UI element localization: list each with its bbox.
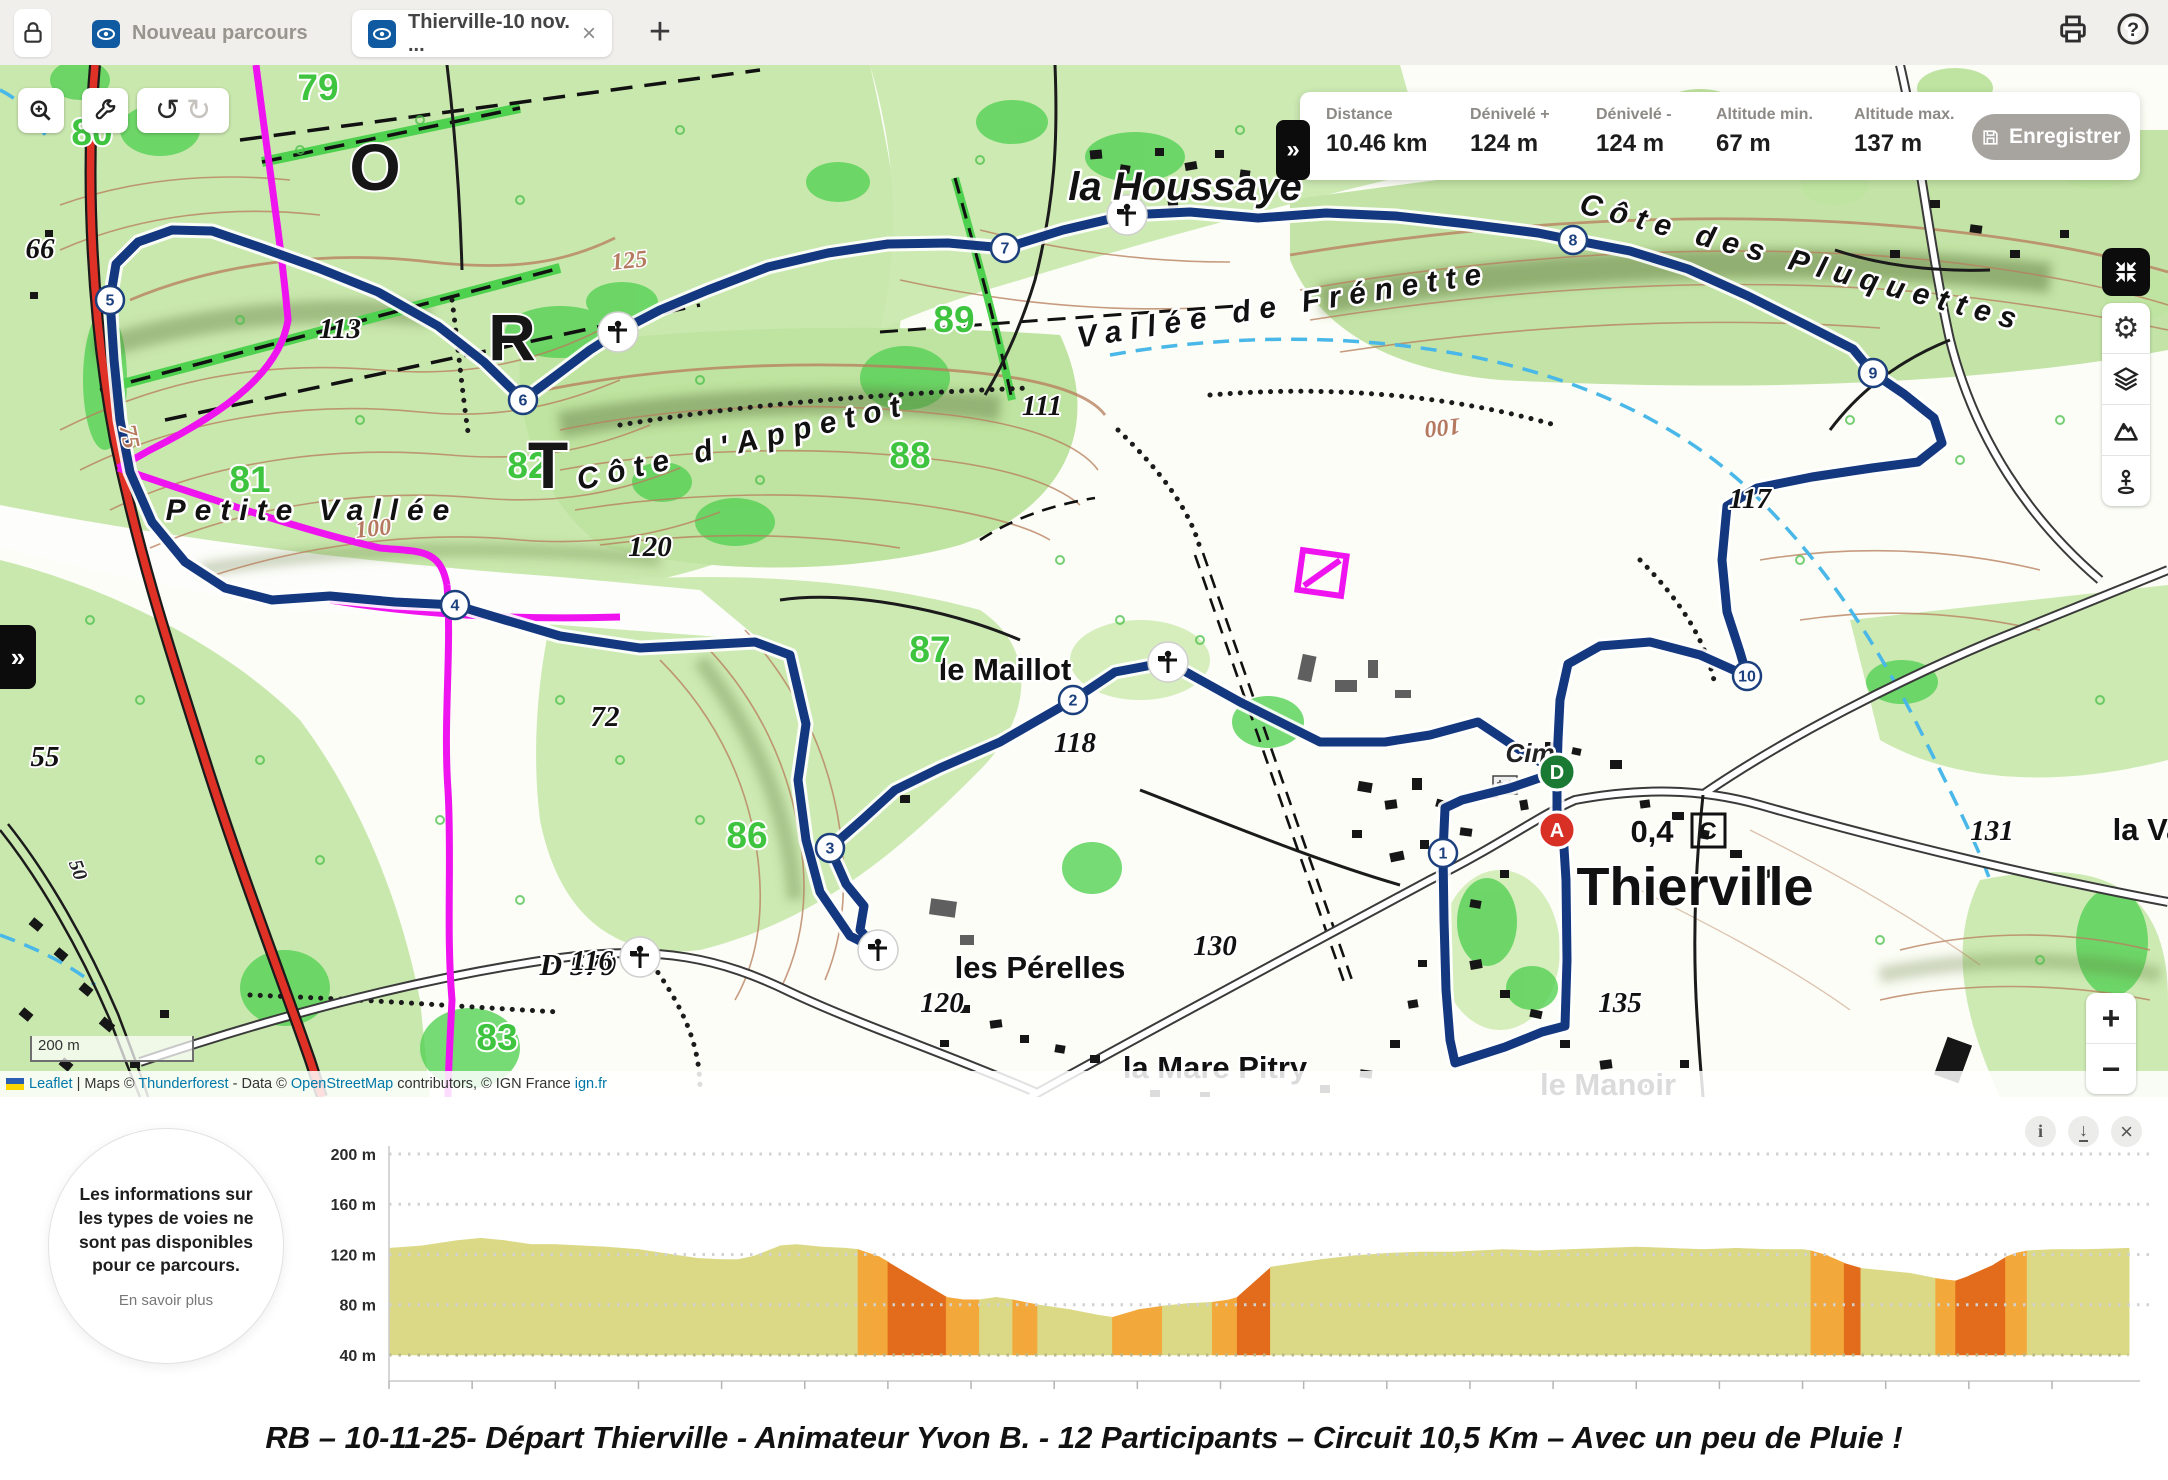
download-icon: ↓ bbox=[2079, 1121, 2088, 1142]
map-label: 117 bbox=[1729, 483, 1772, 515]
map-label: 135 bbox=[1598, 987, 1642, 1019]
gear-icon: ⚙ bbox=[2113, 311, 2140, 346]
building bbox=[1054, 1044, 1065, 1054]
learn-more-link[interactable]: En savoir plus bbox=[119, 1292, 213, 1309]
map-label: la Va bbox=[2113, 812, 2168, 847]
map-attribution: Leaflet | Maps © Thunderforest - Data © … bbox=[0, 1071, 2168, 1097]
waypoint-marker[interactable]: 2 bbox=[1059, 686, 1087, 714]
zoom-in-button[interactable]: + bbox=[2086, 993, 2136, 1044]
profile-area bbox=[389, 1238, 2129, 1355]
stats-panel-toggle[interactable]: » bbox=[1276, 120, 1310, 180]
tree-icon bbox=[436, 816, 444, 824]
caption-text: RB – 10-11-25- Départ Thierville - Anima… bbox=[265, 1420, 1902, 1456]
waypoint-marker[interactable]: 10 bbox=[1733, 662, 1761, 690]
svg-text:3: 3 bbox=[826, 841, 835, 858]
building bbox=[1215, 150, 1224, 158]
building bbox=[2010, 250, 2020, 258]
save-label: Enregistrer bbox=[2009, 125, 2121, 149]
tab-label: Thierville-10 nov. ... bbox=[408, 11, 570, 57]
stat-item: Dénivelé -124 m bbox=[1596, 106, 1672, 158]
lock-button[interactable] bbox=[14, 9, 51, 57]
road-types-tooltip: Les informations sur les types de voies … bbox=[48, 1128, 284, 1364]
building bbox=[1357, 781, 1373, 793]
building bbox=[1020, 1035, 1029, 1043]
svg-text:A: A bbox=[1550, 820, 1564, 842]
svg-text:10: 10 bbox=[1738, 669, 1756, 686]
map-label: 87 bbox=[909, 629, 950, 670]
attribution-link[interactable]: OpenStreetMap bbox=[291, 1076, 393, 1092]
map-label: 83 bbox=[476, 1017, 517, 1058]
map-symbol-c: C bbox=[1692, 814, 1725, 847]
svg-text:8: 8 bbox=[1569, 233, 1578, 250]
map-label: Thierville bbox=[1576, 857, 1813, 917]
building bbox=[900, 795, 910, 803]
building-gray bbox=[1335, 680, 1357, 692]
y-tick-label: 120 m bbox=[331, 1247, 376, 1264]
tree-icon bbox=[1956, 456, 1964, 464]
attribution-text: Leaflet | Maps © Thunderforest - Data © … bbox=[29, 1076, 607, 1092]
exit-fullscreen-button[interactable] bbox=[2102, 248, 2150, 296]
map-label: 86 bbox=[726, 815, 767, 856]
chart-info-button[interactable]: i bbox=[2025, 1116, 2056, 1147]
map-label: 120 bbox=[628, 531, 672, 563]
flag-icon bbox=[6, 1078, 24, 1090]
building bbox=[2060, 230, 2069, 238]
map-label: 0,4 bbox=[1630, 814, 1674, 849]
y-tick-label: 200 m bbox=[331, 1147, 376, 1164]
settings-button[interactable]: ⚙ bbox=[2102, 303, 2150, 354]
map-label: 89 bbox=[933, 299, 974, 340]
building bbox=[1639, 799, 1650, 808]
map-label: 72 bbox=[591, 701, 620, 733]
map-scale: 200 m bbox=[30, 1036, 194, 1062]
waypoint-marker[interactable]: 3 bbox=[816, 834, 844, 862]
help-button[interactable]: ? bbox=[2116, 12, 2150, 46]
magnifier-plus-icon bbox=[28, 98, 54, 124]
building bbox=[1970, 224, 1983, 234]
tab-thierville[interactable]: Thierville-10 nov. ... × bbox=[352, 10, 612, 57]
waypoint-marker[interactable]: 8 bbox=[1559, 226, 1587, 254]
map-label: la Houssaye bbox=[1068, 165, 1301, 209]
tree-icon bbox=[1846, 416, 1854, 424]
close-tab-icon[interactable]: × bbox=[582, 22, 596, 46]
waypoint-marker[interactable]: 1 bbox=[1429, 839, 1457, 867]
stat-item: Altitude min.67 m bbox=[1716, 106, 1813, 158]
left-panel-toggle[interactable]: » bbox=[0, 625, 36, 689]
map-label: 118 bbox=[1054, 727, 1096, 759]
tree-icon bbox=[1876, 936, 1884, 944]
svg-text:1: 1 bbox=[1439, 846, 1448, 863]
start-marker[interactable]: D bbox=[1539, 754, 1575, 790]
zoom-search-button[interactable] bbox=[18, 88, 64, 133]
map-label: 120 bbox=[920, 987, 964, 1019]
map-label: 113 bbox=[319, 313, 361, 345]
building-gray bbox=[960, 935, 974, 945]
map-label: 81 bbox=[229, 459, 270, 500]
y-tick-label: 40 m bbox=[340, 1348, 376, 1365]
redo-button[interactable]: ↻ bbox=[186, 96, 211, 126]
map-label: 55 bbox=[31, 741, 60, 773]
waypoint-marker[interactable]: 4 bbox=[441, 591, 469, 619]
lock-icon bbox=[20, 18, 46, 48]
map-label: 79 bbox=[297, 67, 338, 108]
new-tab-button[interactable]: + bbox=[638, 8, 682, 56]
y-tick-label: 80 m bbox=[340, 1298, 376, 1315]
attribution-link[interactable]: Leaflet bbox=[29, 1076, 73, 1092]
route-eye-icon bbox=[92, 20, 120, 48]
waypoint-marker[interactable]: 6 bbox=[509, 386, 537, 414]
route-stats-panel: Distance10.46 kmDénivelé +124 mDénivelé … bbox=[1300, 92, 2140, 180]
svg-text:6: 6 bbox=[519, 393, 528, 410]
zoom-controls: + − bbox=[2086, 993, 2136, 1094]
building bbox=[1890, 250, 1900, 258]
waypoint-marker[interactable]: 7 bbox=[991, 234, 1019, 262]
building bbox=[1500, 990, 1510, 998]
top-bar: Nouveau parcours Thierville-10 nov. ... … bbox=[0, 0, 2168, 65]
building bbox=[1412, 778, 1422, 790]
map-label: Petite Vallée bbox=[166, 494, 459, 527]
map-label: R bbox=[488, 300, 536, 374]
building-gray bbox=[1395, 690, 1411, 698]
map-label: 111 bbox=[1022, 390, 1062, 422]
building bbox=[1389, 851, 1405, 863]
chart-close-button[interactable]: × bbox=[2111, 1116, 2142, 1147]
svg-text:2: 2 bbox=[1069, 693, 1078, 710]
tree-icon bbox=[1056, 556, 1064, 564]
svg-text:7: 7 bbox=[1001, 241, 1010, 258]
tree-icon bbox=[516, 896, 524, 904]
elevation-chart-section: 200 m160 m120 m80 m40 m0 m500 m1 km1.5 k… bbox=[0, 1097, 2168, 1395]
building bbox=[160, 1010, 169, 1018]
building bbox=[990, 1019, 1003, 1029]
signpost-poi-marker[interactable] bbox=[858, 930, 898, 970]
mountain-icon bbox=[2112, 416, 2140, 444]
building bbox=[1390, 1040, 1400, 1048]
streetview-button[interactable] bbox=[2102, 456, 2150, 506]
save-button[interactable]: Enregistrer bbox=[1972, 114, 2130, 160]
map-label: 66 bbox=[26, 233, 56, 265]
map-label: 100 bbox=[354, 514, 393, 544]
svg-text:9: 9 bbox=[1869, 366, 1878, 383]
tools-button[interactable] bbox=[82, 88, 128, 133]
attribution-link[interactable]: Thunderforest bbox=[138, 1076, 228, 1092]
signpost-poi-marker[interactable] bbox=[598, 312, 638, 352]
building bbox=[1680, 1060, 1689, 1068]
building bbox=[1571, 747, 1581, 756]
chart-download-button[interactable]: ↓ bbox=[2068, 1116, 2099, 1147]
map-label: le Maillot bbox=[939, 652, 1072, 687]
save-icon bbox=[1981, 128, 2000, 147]
svg-text:5: 5 bbox=[106, 293, 115, 310]
undo-redo-group: ↺ ↻ bbox=[137, 88, 229, 133]
relief-button[interactable] bbox=[2102, 405, 2150, 456]
attribution-link[interactable]: ign.fr bbox=[575, 1076, 607, 1092]
building bbox=[1560, 1040, 1570, 1048]
pegman-icon bbox=[2112, 467, 2140, 495]
end-marker[interactable]: A bbox=[1539, 812, 1575, 848]
building bbox=[1418, 960, 1427, 967]
caption-bar: RB – 10-11-25- Départ Thierville - Anima… bbox=[0, 1395, 2168, 1480]
svg-text:C: C bbox=[1699, 818, 1716, 845]
building-gray bbox=[929, 898, 957, 917]
stat-item: Altitude max.137 m bbox=[1854, 106, 1954, 158]
y-tick-label: 160 m bbox=[331, 1197, 376, 1214]
svg-text:?: ? bbox=[2127, 19, 2139, 41]
building bbox=[1500, 870, 1509, 878]
building bbox=[1610, 760, 1622, 769]
layers-button[interactable] bbox=[2102, 354, 2150, 405]
building bbox=[1384, 799, 1397, 810]
map-tools-group: ⚙ bbox=[2102, 303, 2150, 506]
building bbox=[1672, 812, 1684, 820]
map-label: 88 bbox=[889, 435, 930, 476]
topo-map[interactable]: la HoussayeThiervillele Maillotles Pérel… bbox=[0, 65, 2168, 1097]
tab-nouveau-parcours[interactable]: Nouveau parcours bbox=[76, 10, 324, 57]
waypoint-marker[interactable]: 9 bbox=[1859, 359, 1887, 387]
building bbox=[1352, 830, 1362, 838]
map-label: 100 bbox=[1423, 412, 1462, 442]
building bbox=[1420, 840, 1429, 849]
building bbox=[1460, 827, 1473, 837]
svg-text:D: D bbox=[1550, 762, 1564, 784]
building bbox=[940, 1040, 949, 1047]
building bbox=[1930, 200, 1940, 208]
building-gray bbox=[1297, 654, 1316, 682]
stat-item: Distance10.46 km bbox=[1326, 106, 1427, 158]
signpost-poi-marker[interactable] bbox=[1148, 642, 1188, 682]
map-label: 125 bbox=[610, 246, 649, 276]
map-label: O bbox=[349, 130, 400, 204]
signpost-poi-marker[interactable] bbox=[620, 937, 660, 977]
zoom-out-button[interactable]: − bbox=[2086, 1044, 2136, 1094]
map-label: T bbox=[528, 428, 568, 502]
map-label: 130 bbox=[1193, 930, 1237, 962]
map-canvas[interactable]: la HoussayeThiervillele Maillotles Pérel… bbox=[0, 65, 2168, 1097]
tab-label: Nouveau parcours bbox=[132, 22, 308, 45]
map-label: 116 bbox=[571, 945, 613, 977]
tree-icon bbox=[2056, 416, 2064, 424]
route-eye-icon bbox=[368, 20, 396, 48]
building bbox=[1407, 999, 1418, 1009]
layers-icon bbox=[2112, 365, 2140, 393]
map-gr-panel-icon bbox=[1297, 550, 1346, 596]
print-button[interactable] bbox=[2056, 12, 2090, 46]
wrench-icon bbox=[92, 98, 118, 124]
building bbox=[1519, 799, 1529, 810]
map-label: les Pérelles bbox=[955, 950, 1126, 985]
elevation-profile-chart[interactable]: 200 m160 m120 m80 m40 m0 m500 m1 km1.5 k… bbox=[0, 1097, 2168, 1395]
svg-text:4: 4 bbox=[451, 598, 460, 615]
map-label: 131 bbox=[1970, 815, 2014, 847]
building bbox=[30, 292, 38, 299]
building bbox=[1090, 149, 1103, 159]
stat-item: Dénivelé +124 m bbox=[1470, 106, 1550, 158]
building bbox=[1155, 148, 1164, 156]
building bbox=[1090, 1055, 1100, 1063]
waypoint-marker[interactable]: 5 bbox=[96, 286, 124, 314]
building-gray bbox=[1368, 660, 1378, 678]
tooltip-text: Les informations sur les types de voies … bbox=[73, 1183, 259, 1278]
collapse-icon bbox=[2112, 258, 2140, 286]
undo-button[interactable]: ↺ bbox=[155, 96, 180, 126]
tree-icon bbox=[1796, 556, 1804, 564]
